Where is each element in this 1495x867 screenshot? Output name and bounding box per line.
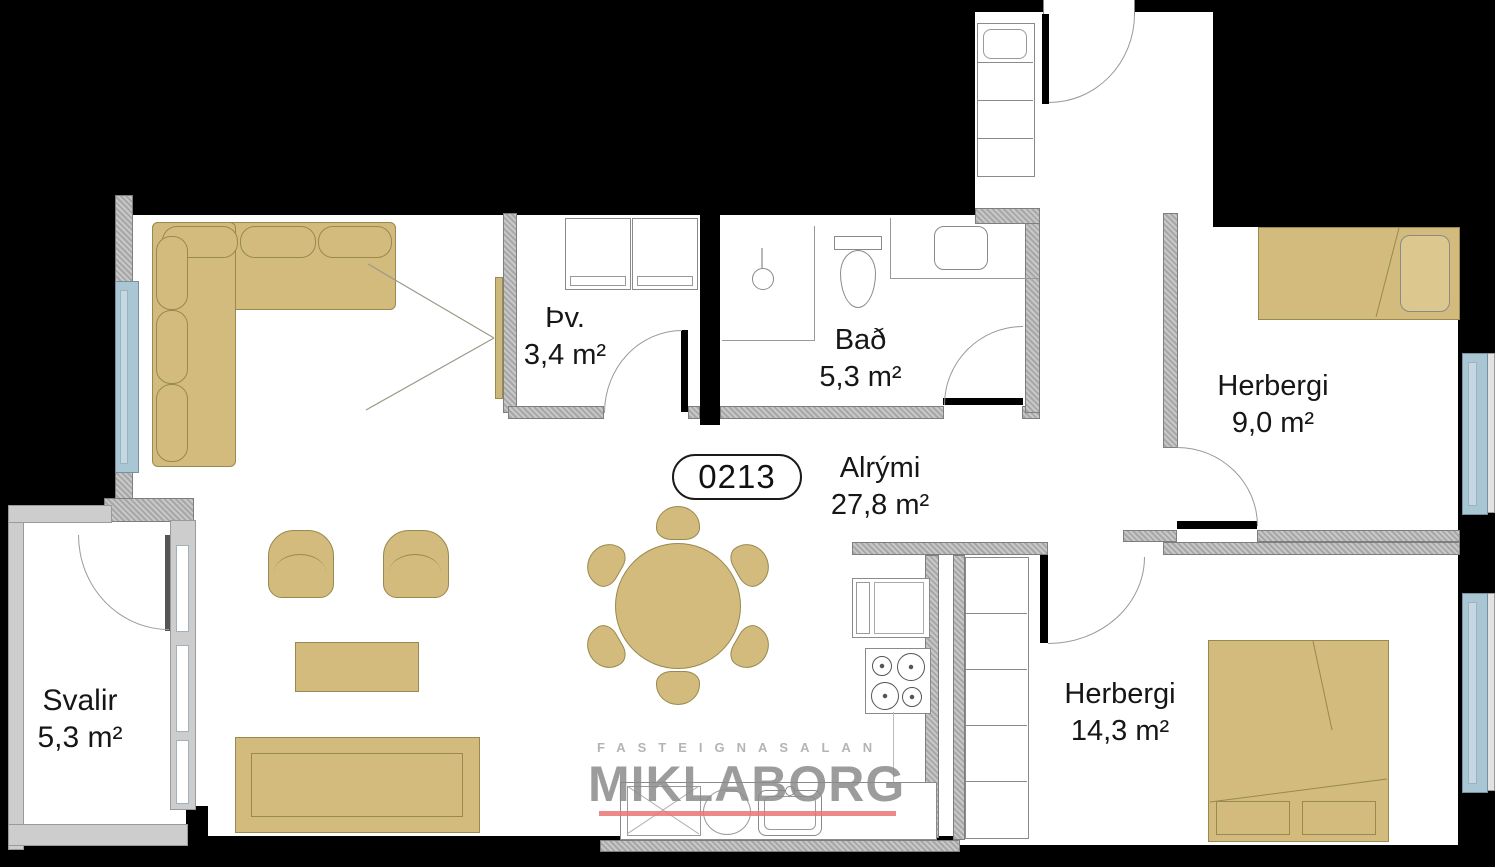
label-balcony: Svalir 5,3 m² — [15, 682, 145, 756]
wall-bedroom9-west — [1163, 213, 1178, 448]
bed-double-pillow — [1302, 801, 1376, 835]
room-name: Þv. — [500, 300, 630, 337]
wall-closet-west — [953, 555, 965, 840]
window-bedroom14-frame — [1468, 602, 1477, 784]
dining-table — [615, 543, 741, 669]
window-bedroom9-frame — [1468, 362, 1477, 506]
closet-divider — [977, 62, 1033, 63]
dryer-panel — [637, 276, 693, 286]
wall-balcony-south — [8, 824, 188, 846]
unit-number-badge: 0213 — [672, 454, 802, 500]
dining-chair — [656, 506, 700, 540]
wall-bottom-kitchen — [600, 840, 960, 852]
washing-machine-panel — [570, 276, 626, 286]
wardrobe-divider — [965, 725, 1027, 726]
sofa-back-cushion — [240, 226, 316, 258]
watermark-underline — [599, 811, 896, 816]
room-area: 5,3 m² — [15, 719, 145, 756]
wall-corridor-south — [1163, 542, 1460, 555]
laundry-door-leaf — [681, 330, 688, 412]
room-area: 3,4 m² — [500, 337, 630, 374]
burner — [871, 682, 899, 710]
label-bathroom: Bað 5,3 m² — [798, 322, 923, 396]
wall-left-upper — [115, 195, 133, 285]
shower-head — [752, 268, 774, 290]
sofa-back-cushion — [156, 310, 188, 384]
wall-hall-right — [1213, 12, 1233, 227]
room-area: 27,8 m² — [815, 487, 945, 524]
wall-balcony-jut — [104, 498, 194, 522]
wardrobe-divider — [965, 781, 1027, 782]
hall-closet-basket — [983, 29, 1027, 59]
room-name: Svalir — [15, 682, 145, 719]
armchair-seam — [274, 554, 326, 591]
oven-unit-front — [874, 582, 924, 634]
label-bedroom-large: Herbergi 14,3 m² — [1050, 676, 1190, 750]
room-name: Alrými — [815, 450, 945, 487]
rug-sofa-inner — [251, 753, 463, 817]
room-area: 5,3 m² — [798, 359, 923, 396]
bed-single-pillow — [1400, 235, 1450, 312]
room-area: 14,3 m² — [1050, 713, 1190, 750]
room-name: Bað — [798, 322, 923, 359]
wall-topright-mass — [1220, 195, 1495, 227]
coffee-table — [295, 642, 419, 692]
sofa-back-cushion — [156, 236, 188, 310]
sofa-back-cushion — [156, 384, 188, 462]
bedroom-large-door-leaf — [1040, 555, 1048, 643]
wall-laundry-bath-divider — [700, 195, 720, 425]
watermark-tagline: FASTEIGNASALAN — [597, 740, 917, 755]
oven-unit-door — [856, 582, 870, 634]
closet-divider — [977, 138, 1033, 139]
washbasin — [934, 226, 988, 270]
burner — [902, 687, 922, 707]
label-bedroom-small: Herbergi 9,0 m² — [1203, 368, 1343, 442]
wall-laundry-south — [508, 406, 604, 419]
wardrobe-divider — [965, 669, 1027, 670]
armchair-seam — [389, 554, 441, 591]
bedroom-large-wardrobe — [965, 557, 1029, 839]
wall-balcony-north — [8, 505, 112, 523]
wall-bedroom9-south-a — [1123, 530, 1177, 542]
wall-laundry-south-b — [688, 406, 700, 419]
watermark-brand-text: MIKLABORG — [588, 756, 905, 812]
window-living-west-frame — [120, 290, 128, 464]
room-name: Herbergi — [1203, 368, 1343, 405]
burner — [897, 653, 925, 681]
watermark-tagline-text: FASTEIGNASALAN — [597, 740, 884, 755]
room-area: 9,0 m² — [1203, 405, 1343, 442]
wall-balcony-west — [8, 505, 24, 850]
room-name: Herbergi — [1050, 676, 1190, 713]
wall-bedroom9-south-b — [1257, 530, 1460, 542]
label-laundry: Þv. 3,4 m² — [500, 300, 630, 374]
wall-top-band — [117, 195, 975, 215]
floor-plan: 0213 Þv. 3,4 m² Bað 5,3 m² Alrými 27,8 m… — [0, 0, 1495, 867]
wardrobe-divider — [965, 613, 1027, 614]
closet-divider — [977, 100, 1033, 101]
balcony-glass-pane-1 — [176, 545, 189, 632]
wall-kitchen-north — [852, 542, 1048, 555]
unit-number: 0213 — [698, 458, 775, 495]
watermark-brand: MIKLABORG — [588, 755, 918, 813]
balcony-glass-pane-3 — [176, 740, 189, 804]
label-living-area: Alrými 27,8 m² — [815, 450, 945, 524]
sofa-back-cushion — [318, 226, 392, 258]
bed-double-pillow — [1216, 801, 1290, 835]
toilet-tank — [834, 236, 882, 250]
balcony-glass-pane-2 — [176, 645, 189, 732]
burner — [872, 656, 892, 676]
wall-bath-south — [720, 406, 944, 419]
entrance-door-leaf — [1042, 14, 1049, 104]
